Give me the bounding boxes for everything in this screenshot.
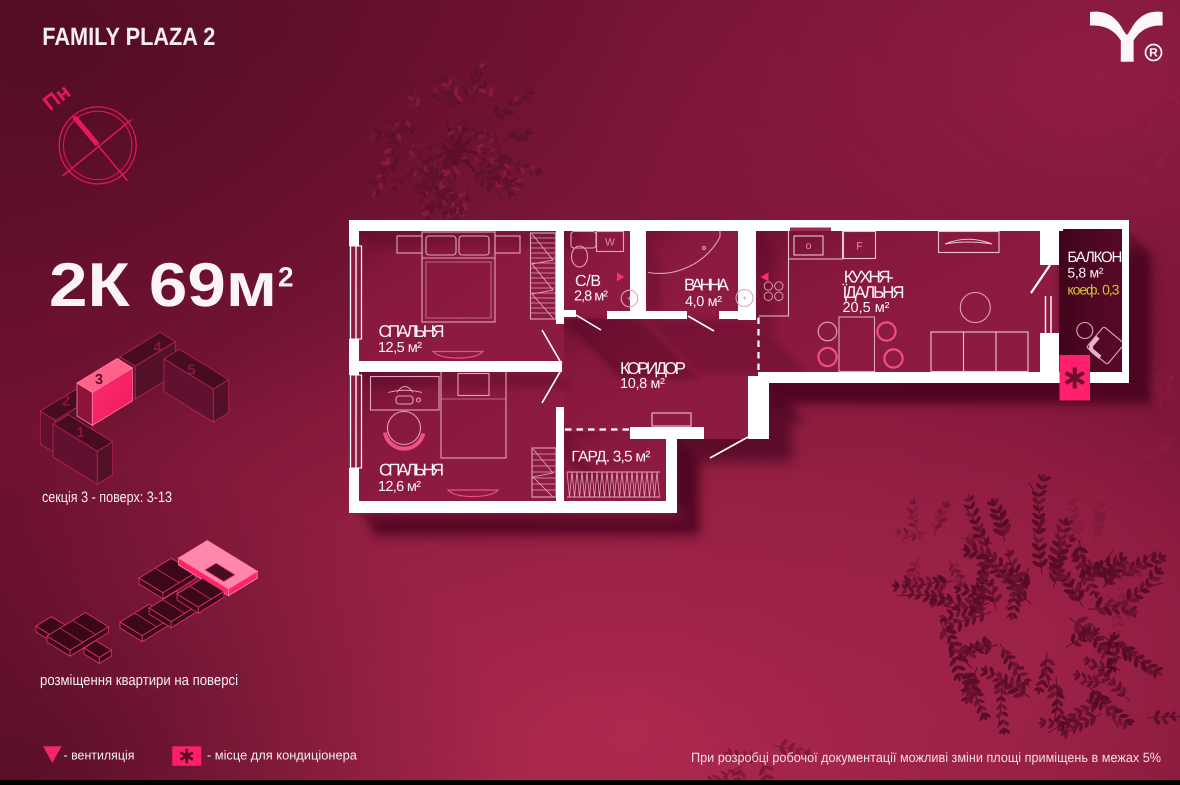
svg-text:ГАРД. 3,5 м²: ГАРД. 3,5 м² xyxy=(571,449,650,466)
svg-text:10,8 м²: 10,8 м² xyxy=(620,376,665,392)
svg-text:2К 69м2: 2К 69м2 xyxy=(49,251,294,320)
svg-text:секція 3 - поверх: 3-13: секція 3 - поверх: 3-13 xyxy=(42,489,172,506)
svg-text:2: 2 xyxy=(62,394,70,410)
svg-text:3: 3 xyxy=(95,372,103,388)
svg-text:5: 5 xyxy=(187,363,195,379)
svg-text:12,5 м²: 12,5 м² xyxy=(378,340,422,356)
svg-text:FAMILY PLAZA 2: FAMILY PLAZA 2 xyxy=(42,23,215,51)
svg-text:W: W xyxy=(605,237,615,249)
svg-text:R: R xyxy=(1149,46,1158,60)
svg-text:При розробці робочої документа: При розробці робочої документації можлив… xyxy=(691,750,1161,765)
svg-text:- місце для кондиціонера: - місце для кондиціонера xyxy=(207,748,358,763)
svg-text:2,8 м²: 2,8 м² xyxy=(574,289,608,305)
svg-text:20,5 м²: 20,5 м² xyxy=(843,300,890,316)
svg-text:F: F xyxy=(856,241,862,253)
svg-text:1: 1 xyxy=(76,425,84,441)
svg-text:4,0 м²: 4,0 м² xyxy=(685,294,722,310)
svg-text:БАЛКОН: БАЛКОН xyxy=(1067,249,1122,266)
svg-text:5,8 м²: 5,8 м² xyxy=(1067,265,1103,281)
svg-text:12,6 м²: 12,6 м² xyxy=(378,479,421,495)
svg-text:o: o xyxy=(806,240,812,252)
svg-text:коеф. 0,3: коеф. 0,3 xyxy=(1067,282,1119,298)
svg-text:ВАННА: ВАННА xyxy=(684,276,730,295)
svg-text:СПАЛЬНЯ: СПАЛЬНЯ xyxy=(379,322,445,341)
svg-text:С/В: С/В xyxy=(575,273,601,290)
svg-text:4: 4 xyxy=(153,340,161,356)
svg-text:- вентиляція: - вентиляція xyxy=(64,748,135,763)
svg-text:СПАЛЬНЯ: СПАЛЬНЯ xyxy=(379,461,444,480)
svg-text:розміщення квартири на поверсі: розміщення квартири на поверсі xyxy=(40,672,238,689)
